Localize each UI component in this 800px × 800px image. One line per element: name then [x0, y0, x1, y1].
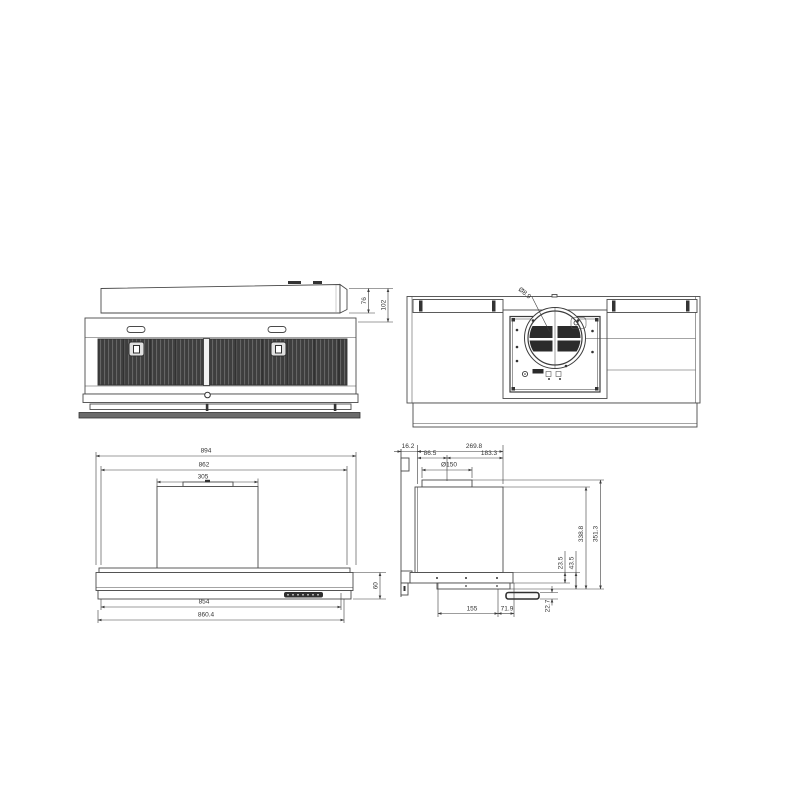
- visor-profile: [506, 593, 539, 600]
- front-view: 76 102: [79, 281, 393, 418]
- dim-label-894: 894: [201, 448, 212, 455]
- rear-view: 894 862 305: [96, 448, 386, 624]
- dim-label-102: 102: [381, 299, 388, 310]
- vent-slot-left: [127, 327, 145, 333]
- knob: [205, 392, 211, 398]
- dim-total-height: 102: [381, 289, 389, 323]
- dim-label-60: 60: [373, 582, 380, 590]
- duct-outlet: [524, 308, 586, 369]
- vent-slot-right: [268, 327, 286, 333]
- dim-label-338-8: 338.8: [578, 525, 585, 542]
- technical-drawing-page: 76 102: [0, 0, 800, 800]
- dim-label-16-2: 16.2: [402, 443, 415, 450]
- dim-depth-overall: 269.8: [418, 443, 504, 484]
- hood-body: [79, 318, 360, 418]
- dim-bottom-offsets: 23.5 43.5: [513, 551, 580, 589]
- dim-label-155: 155: [467, 606, 478, 613]
- bottom-visor-strip: [79, 413, 360, 419]
- filter-handle-left: [129, 342, 144, 356]
- hood-body-rear: [96, 568, 353, 599]
- dim-label-71-9: 71.9: [501, 606, 514, 613]
- dim-depth-split: 86.5 183.3: [418, 450, 504, 481]
- dim-label-862: 862: [199, 462, 210, 469]
- duct-collar: [422, 480, 472, 487]
- dim-label-86-5: 86.5: [424, 450, 437, 457]
- control-panel: [284, 592, 323, 598]
- dim-label-43-5: 43.5: [569, 556, 576, 569]
- mount-flange-right: [607, 300, 697, 313]
- duct-cover: [157, 480, 258, 573]
- mount-flange-left: [413, 300, 503, 313]
- dim-label-183-3: 183.3: [481, 450, 498, 457]
- cooker-hood-dimension-drawing: 76 102: [0, 0, 800, 800]
- filter-divider: [204, 339, 210, 386]
- dim-body-height: 60: [353, 573, 386, 600]
- dim-label-150: Ø150: [441, 462, 457, 469]
- dim-label-22-7: 22.7: [545, 599, 552, 612]
- dim-label-305: 305: [198, 474, 209, 481]
- dim-width-base: 860.4: [98, 599, 344, 623]
- dim-label-269-8: 269.8: [466, 443, 483, 450]
- body-profile: [410, 480, 539, 599]
- filter-handle-right: [271, 342, 286, 356]
- side-view: 16.2 269.8 86.5 183.3 Ø150 338.8: [394, 443, 604, 617]
- dim-label-23-5: 23.5: [558, 556, 565, 569]
- dim-label-76: 76: [361, 297, 368, 305]
- dim-label-351-3: 351.3: [593, 525, 600, 542]
- dim-label-860-4: 860.4: [198, 612, 215, 619]
- dim-visor-height: 22.7: [540, 586, 558, 612]
- top-view: Ø8.9: [407, 286, 700, 427]
- chimney-section: [101, 281, 347, 313]
- dim-label-854: 854: [199, 599, 210, 606]
